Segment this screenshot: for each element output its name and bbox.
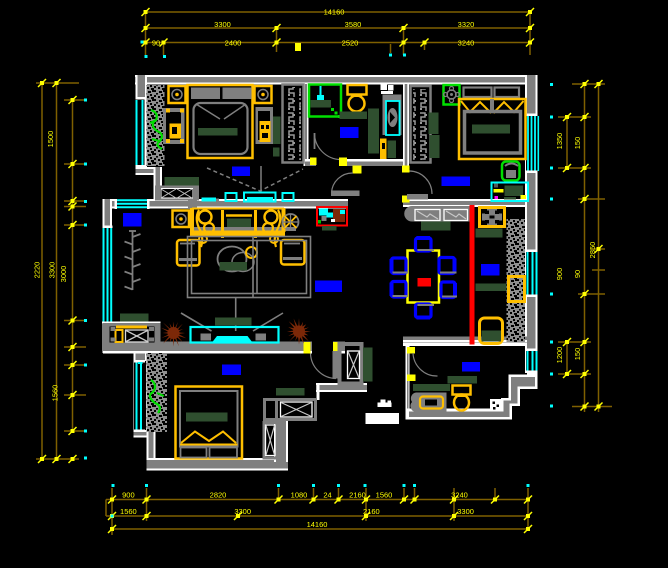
- svg-text:2400: 2400: [225, 39, 242, 48]
- svg-text:2160: 2160: [363, 507, 380, 516]
- svg-text:14160: 14160: [307, 520, 328, 529]
- svg-text:1560: 1560: [120, 507, 137, 516]
- svg-text:3240: 3240: [451, 491, 468, 500]
- svg-text:3300: 3300: [48, 262, 57, 279]
- svg-text:2820: 2820: [210, 491, 227, 500]
- svg-text:3000: 3000: [59, 266, 68, 283]
- svg-text:1500: 1500: [46, 131, 55, 148]
- svg-text:3300: 3300: [234, 507, 251, 516]
- svg-text:2850: 2850: [588, 242, 597, 259]
- svg-text:1080: 1080: [291, 491, 308, 500]
- svg-text:1560: 1560: [51, 385, 60, 402]
- svg-text:3320: 3320: [458, 20, 475, 29]
- svg-text:150: 150: [573, 348, 582, 361]
- svg-text:24: 24: [323, 491, 331, 500]
- svg-text:90: 90: [573, 270, 582, 278]
- svg-text:1200: 1200: [555, 347, 564, 364]
- svg-text:150: 150: [573, 137, 582, 150]
- svg-text:3300: 3300: [457, 507, 474, 516]
- svg-text:3300: 3300: [214, 20, 231, 29]
- svg-text:3240: 3240: [458, 39, 475, 48]
- svg-text:1350: 1350: [555, 133, 564, 150]
- svg-text:900: 900: [555, 268, 564, 281]
- svg-text:3580: 3580: [345, 20, 362, 29]
- svg-text:2520: 2520: [342, 39, 359, 48]
- svg-text:2160: 2160: [349, 491, 366, 500]
- svg-text:900: 900: [122, 491, 135, 500]
- svg-text:14160: 14160: [324, 8, 345, 17]
- svg-text:1560: 1560: [376, 491, 393, 500]
- svg-text:2220: 2220: [33, 262, 42, 279]
- svg-text:90: 90: [152, 39, 160, 48]
